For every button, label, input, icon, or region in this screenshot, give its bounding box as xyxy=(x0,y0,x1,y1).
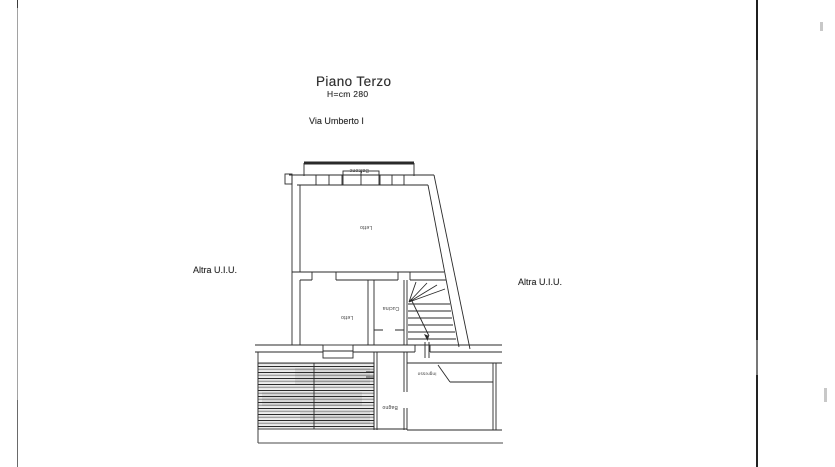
room-label-bedroom: Letto xyxy=(341,314,353,320)
room-label-entry: Ingresso xyxy=(418,372,437,377)
room-label-bathroom: Bagno xyxy=(382,404,397,410)
scanned-floor-plan-page: Piano Terzo H=cm 280 Via Umberto I Altra… xyxy=(0,0,835,467)
bathroom-walls xyxy=(374,352,377,430)
room-label-balcony: Balcone xyxy=(349,167,368,173)
bottom-wall xyxy=(255,345,502,358)
floor-plan-drawing xyxy=(0,0,835,467)
room-label-kitchen: Cucina xyxy=(383,305,400,311)
middle-wall xyxy=(292,272,446,280)
interior-partitions xyxy=(368,280,407,345)
top-wall-windows xyxy=(316,171,404,185)
room-label-main-room: Letto xyxy=(360,224,372,230)
apartment-outer-walls xyxy=(285,174,470,349)
